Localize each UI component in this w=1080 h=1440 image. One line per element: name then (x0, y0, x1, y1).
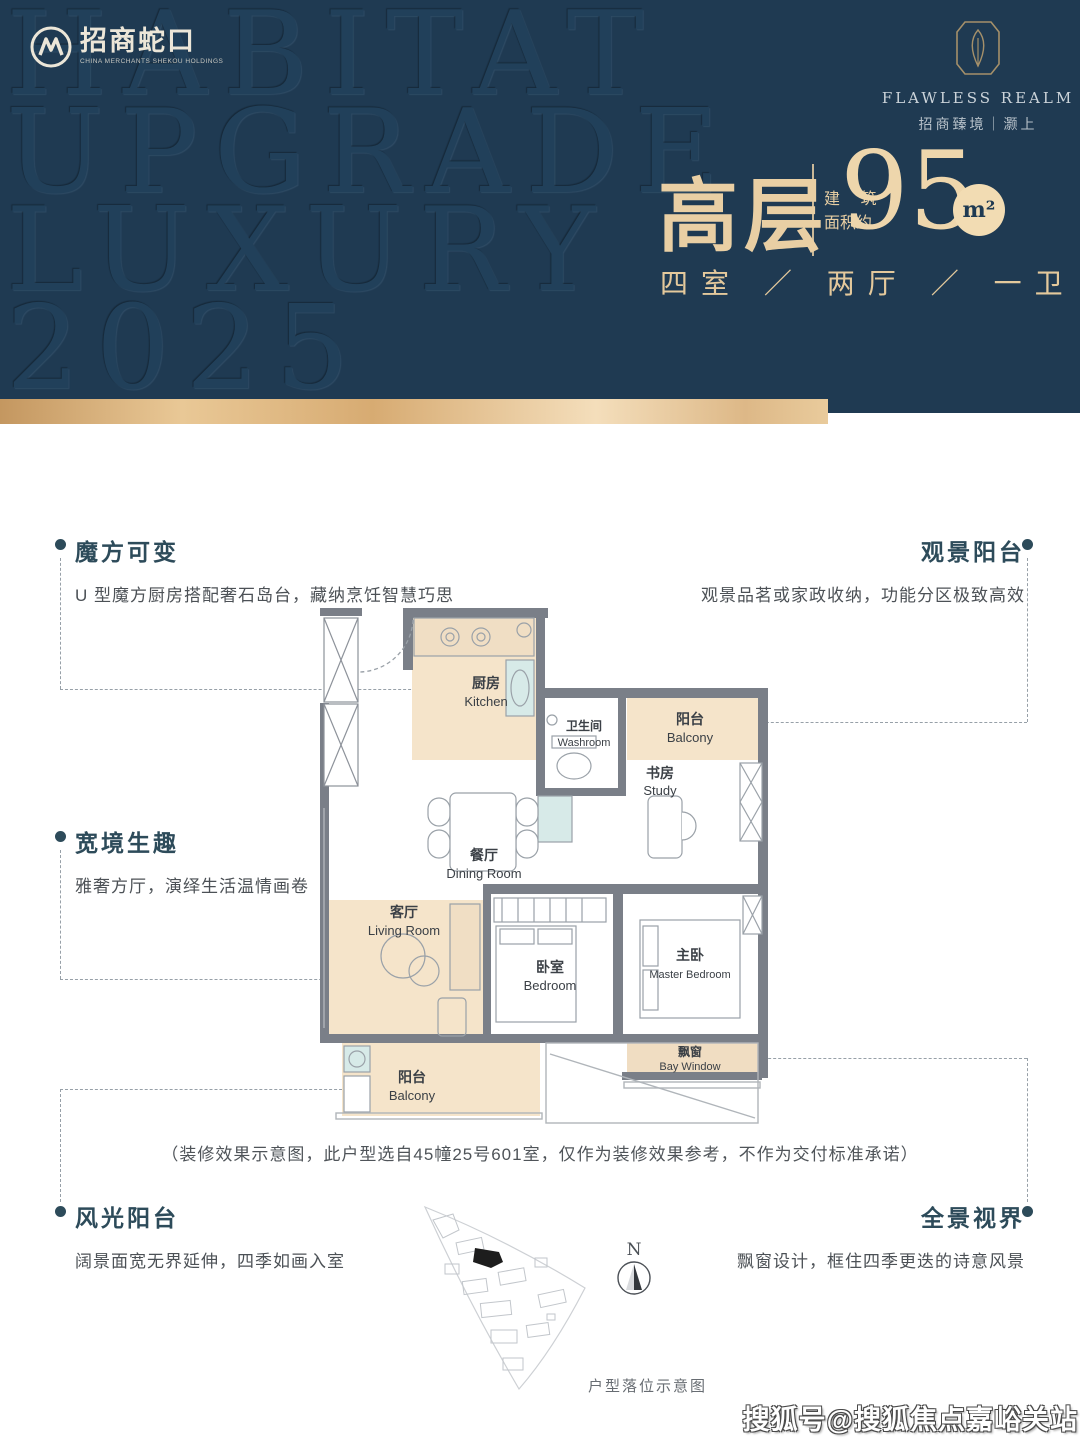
area-unit-badge: m² (953, 184, 1005, 236)
label-study-en: Study (643, 783, 677, 798)
label-bedroom-cn: 卧室 (536, 959, 564, 975)
label-bay-cn: 飘窗 (678, 1044, 702, 1059)
compass-n-label: N (612, 1240, 656, 1260)
label-living-en: Living Room (368, 923, 440, 938)
label-balcony-bottom-cn: 阳台 (398, 1069, 426, 1085)
label-bedroom-en: Bedroom (524, 978, 577, 993)
label-washroom-en: Washroom (558, 737, 611, 749)
callout-bullet (1022, 539, 1033, 550)
project-emblem-icon (955, 63, 1001, 80)
title-divider (812, 164, 814, 256)
developer-logo-icon (30, 26, 72, 73)
label-dining-cn: 餐厅 (469, 847, 498, 863)
developer-logo: 招商蛇口 CHINA MERCHANTS SHEKOU HOLDINGS (30, 26, 223, 73)
label-balcony-top-en: Balcony (667, 730, 714, 745)
site-boundary (425, 1207, 585, 1389)
callout-view-balcony: 观景阳台 观景品茗或家政收纳，功能分区极致高效 (701, 533, 1025, 606)
callout-bullet (1022, 1206, 1033, 1217)
callout-living: 宽境生趣 雅奢方厅，演绎生活温情画卷 (75, 824, 309, 897)
poster: HABITAT UPGRADE LUXURY 2025 招商蛇口 CHINA M… (0, 0, 1080, 1440)
label-washroom-cn: 卫生间 (566, 718, 602, 733)
project-name-en: FLAWLESS REALM (868, 89, 1080, 107)
callout-panorama-title: 全景视界 (737, 1199, 1025, 1233)
siteplan-label: 户型落位示意图 (588, 1375, 707, 1396)
label-kitchen-en: Kitchen (464, 694, 507, 709)
plan-caption: （装修效果示意图，此户型选自45幢25号601室，仅作为装修效果参考，不作为交付… (0, 1140, 1080, 1165)
sohu-watermark: 搜狐号@搜狐焦点嘉峪关站 (743, 1398, 1078, 1437)
callout-bullet (55, 1206, 66, 1217)
callout-bullet (55, 831, 66, 842)
site-highlight-building (473, 1248, 503, 1268)
compass: N (612, 1240, 656, 1301)
compass-icon (616, 1260, 652, 1296)
gold-divider (0, 399, 828, 424)
developer-tagline: CHINA MERCHANTS SHEKOU HOLDINGS (80, 58, 223, 65)
callout-bullet (55, 539, 66, 550)
floorplan: 厨房 卫生间 阳台 书房 餐厅 客厅 卧室 主卧 飘窗 阳台 Kitchen W… (300, 608, 792, 1133)
label-living-cn: 客厅 (389, 904, 418, 920)
area-value: 95 (840, 138, 977, 246)
header-right-extension (828, 400, 1080, 413)
project-brand: FLAWLESS REALM 招商臻境｜灏上 (868, 20, 1080, 134)
developer-name: 招商蛇口 (80, 26, 223, 56)
connector-line (60, 850, 61, 979)
entry-wardrobe (324, 618, 358, 786)
callout-scenery-balcony-title: 风光阳台 (75, 1199, 345, 1233)
callout-living-title: 宽境生趣 (75, 824, 309, 858)
label-bay-en: Bay Window (659, 1061, 720, 1073)
label-kitchen-cn: 厨房 (472, 675, 500, 691)
connector-line (1027, 1058, 1028, 1202)
balcony-top-area (627, 698, 758, 760)
callout-panorama: 全景视界 飘窗设计，框住四季更迭的诗意风景 (737, 1199, 1025, 1272)
connector-line (1027, 558, 1028, 722)
layout-subtitle: 四室 ／ 两厅 ／ 一卫 (660, 262, 1076, 302)
header-banner: HABITAT UPGRADE LUXURY 2025 招商蛇口 CHINA M… (0, 0, 1080, 400)
callout-kitchen-desc: U 型魔方厨房搭配奢石岛台，藏纳烹饪智慧巧思 (75, 581, 454, 606)
callout-scenery-balcony: 风光阳台 阔景面宽无界延伸，四季如画入室 (75, 1199, 345, 1272)
callout-view-balcony-desc: 观景品茗或家政收纳，功能分区极致高效 (701, 581, 1025, 606)
callout-kitchen: 魔方可变 U 型魔方厨房搭配奢石岛台，藏纳烹饪智慧巧思 (75, 533, 454, 606)
callout-living-desc: 雅奢方厅，演绎生活温情画卷 (75, 872, 309, 897)
label-master-en: Master Bedroom (649, 969, 730, 981)
balcony-bottom-area (342, 1042, 540, 1116)
balcony-washer (344, 1046, 370, 1112)
siteplan-sketch (395, 1192, 605, 1397)
label-balcony-bottom-en: Balcony (389, 1088, 436, 1103)
callout-panorama-desc: 飘窗设计，框住四季更迭的诗意风景 (737, 1247, 1025, 1272)
site-buildings (433, 1214, 566, 1370)
callout-kitchen-title: 魔方可变 (75, 533, 454, 567)
callout-scenery-balcony-desc: 阔景面宽无界延伸，四季如画入室 (75, 1247, 345, 1272)
washroom-fixtures (538, 715, 596, 842)
callout-view-balcony-title: 观景阳台 (701, 533, 1025, 567)
label-master-cn: 主卧 (676, 947, 704, 963)
label-dining-en: Dining Room (446, 866, 521, 881)
connector-line (60, 558, 61, 689)
plan-type-title: 高层 (658, 152, 830, 268)
label-balcony-top-cn: 阳台 (676, 711, 704, 727)
label-study-cn: 书房 (646, 765, 674, 781)
